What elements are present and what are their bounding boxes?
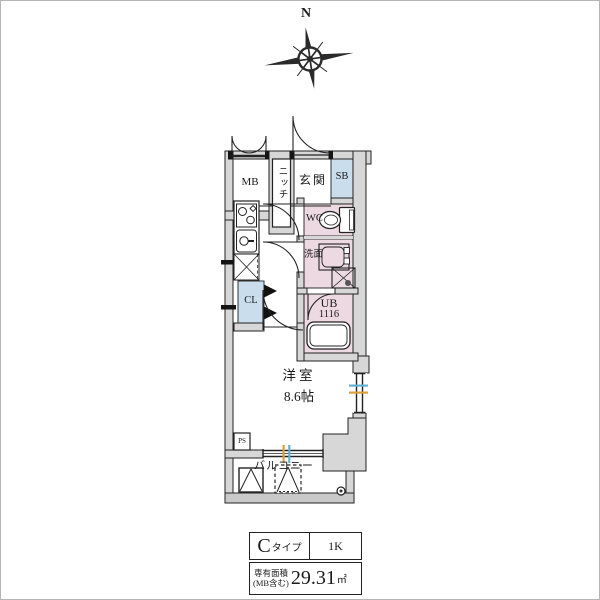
kitchen-sink-icon xyxy=(237,230,257,252)
mb-door-right xyxy=(249,136,266,153)
area-value: 29.31 xyxy=(291,567,336,590)
pipe-space-label: PS xyxy=(234,438,250,445)
entrance-label: 玄関 xyxy=(294,174,332,186)
window-tick-orange-2 xyxy=(349,392,368,394)
main-room-label: 洋室 xyxy=(269,369,329,383)
stove-icon xyxy=(237,204,257,227)
main-room-size-label: 8.6帖 xyxy=(269,390,329,404)
washroom-label: 洗面 xyxy=(304,251,323,261)
wc-label: WC xyxy=(306,214,323,225)
floor-plan-drawing xyxy=(1,1,600,600)
appliance-space-icon xyxy=(234,254,259,280)
unit-type-cell: Cタイプ xyxy=(250,533,310,559)
spec-table: Cタイプ 1K 専有面積 (MB含む) 29.31㎡ xyxy=(249,532,362,595)
entrance-door xyxy=(293,116,330,153)
shoe-box-label: SB xyxy=(331,172,353,183)
mb-label: MB xyxy=(233,177,267,188)
unit-bath-label: UB xyxy=(313,297,345,309)
layout-cell: 1K xyxy=(310,533,361,559)
side-window xyxy=(349,373,368,413)
washroom-door xyxy=(263,242,299,278)
area-label-line2: (MB含む) xyxy=(253,579,289,589)
unit-type-suffix: タイプ xyxy=(272,539,302,554)
balcony-rail xyxy=(225,493,354,503)
unit-bath-size-label: 1116 xyxy=(311,310,347,321)
spec-table-row-area: 専有面積 (MB含む) 29.31㎡ xyxy=(249,562,362,595)
balcony-label: バルコニー xyxy=(249,461,319,472)
mb-door-left xyxy=(232,136,249,153)
spec-table-row-type: Cタイプ 1K xyxy=(249,532,362,560)
compass-icon xyxy=(260,21,358,95)
floor-plan-page: N MB ニッチ 玄関 SB WC 洗面 UB 1116 CL PS 洋室 8.… xyxy=(0,0,600,600)
window-tick-blue-2 xyxy=(349,385,368,387)
area-unit: ㎡ xyxy=(337,571,347,586)
kitchen-counter xyxy=(234,201,259,254)
area-label: 専有面積 (MB含む) xyxy=(253,569,289,589)
compass-north-label: N xyxy=(301,7,311,21)
bathtub-icon xyxy=(307,322,350,349)
closet-label: CL xyxy=(239,296,263,307)
drain-icon xyxy=(337,487,345,495)
niche-label: ニッチ xyxy=(276,166,286,201)
unit-type-letter: C xyxy=(257,535,270,558)
